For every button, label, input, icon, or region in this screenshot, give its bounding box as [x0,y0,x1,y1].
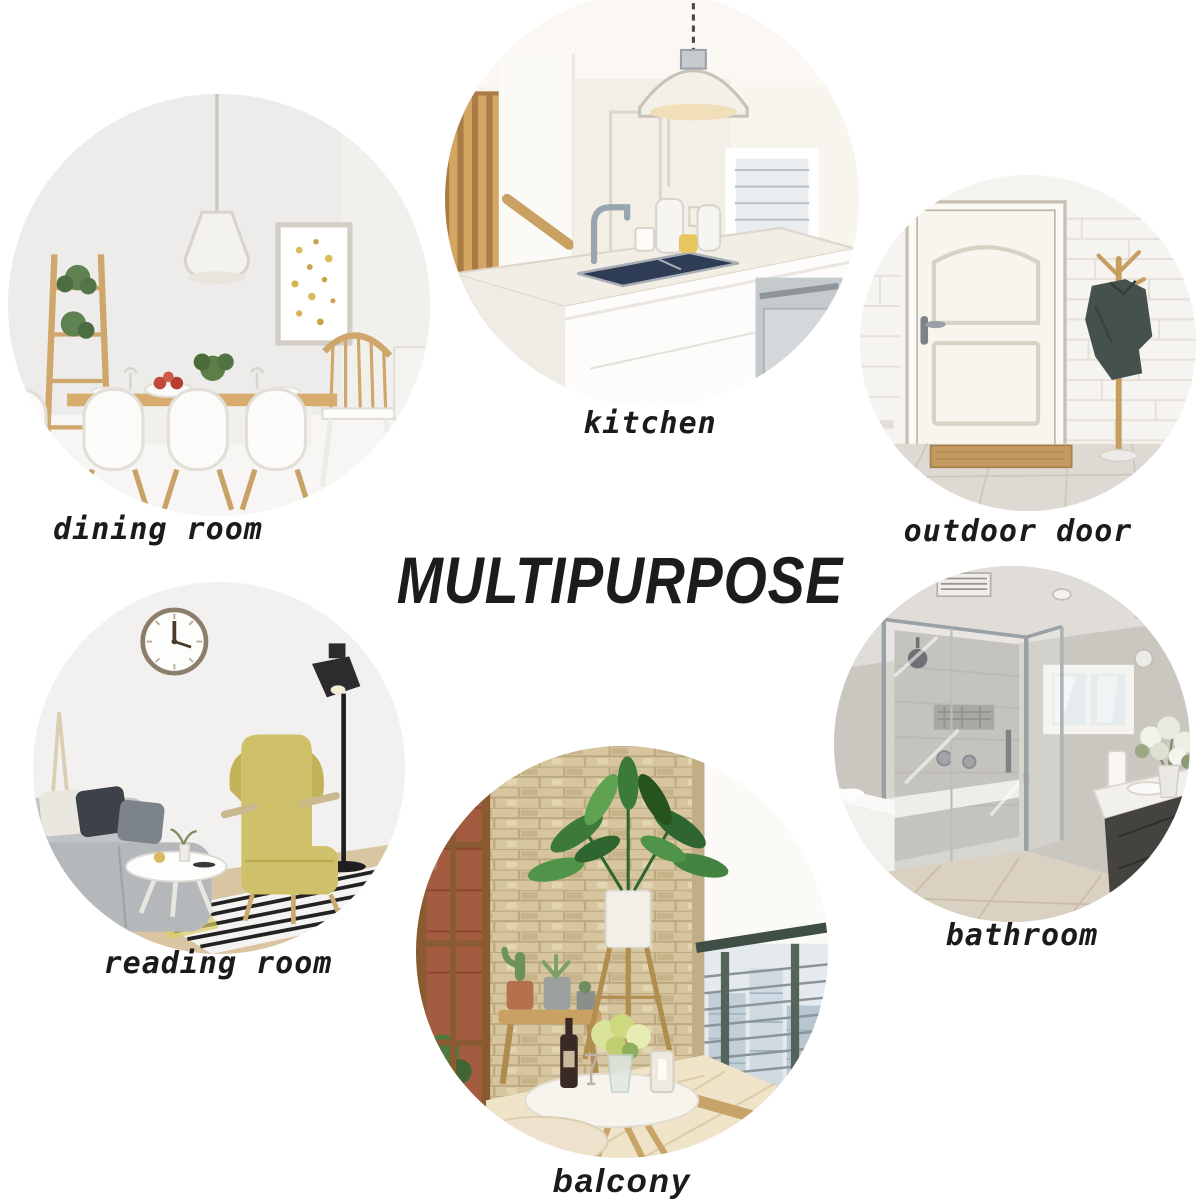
glass-door-icon [416,750,490,1146]
gold-dot-art-icon [278,225,350,343]
bathroom-label: bathroom [872,918,1172,953]
door-icon [907,202,1065,454]
balcony-label: balcony [472,1162,772,1200]
reading-room-label: reading room [68,946,368,981]
bathroom-scene [834,566,1190,922]
stool-icon [472,1117,608,1158]
collage-title-text: MULTIPURPOSE [397,543,843,617]
dishwasher-icon [756,278,843,398]
balcony-photo [416,746,828,1158]
bathroom-photo [834,566,1190,922]
shoe-ledge [860,420,894,428]
ceiling-vent-icon [937,573,990,596]
dining-room-label: dining room [28,512,288,547]
kitchen-scene [445,0,859,406]
recessed-light-icon [1053,589,1071,600]
outdoor-door-scene [860,175,1196,511]
balcony-scene [416,746,828,1158]
product-collage: dining room kitchen outdoor door reading… [0,0,1200,1200]
outdoor-door-label: outdoor door [868,514,1168,549]
outdoor-door-photo [860,175,1196,511]
bathtub-icon [834,787,895,922]
reading-room-scene [33,582,405,954]
stair-balusters-icon [445,91,499,406]
wall-clock-icon [143,610,206,673]
doormat-icon [931,445,1072,467]
kitchen-label: kitchen [530,406,770,441]
recessed-light-2-icon [1135,609,1153,620]
dining-room-photo [8,94,430,516]
collage-title: MULTIPURPOSE [376,542,863,618]
dining-room-scene [8,94,430,516]
rack-base [1100,450,1137,462]
shower-glass-icon [884,619,1062,872]
kitchen-photo [445,0,859,406]
sideboard [394,347,430,419]
reading-room-photo [33,582,405,954]
